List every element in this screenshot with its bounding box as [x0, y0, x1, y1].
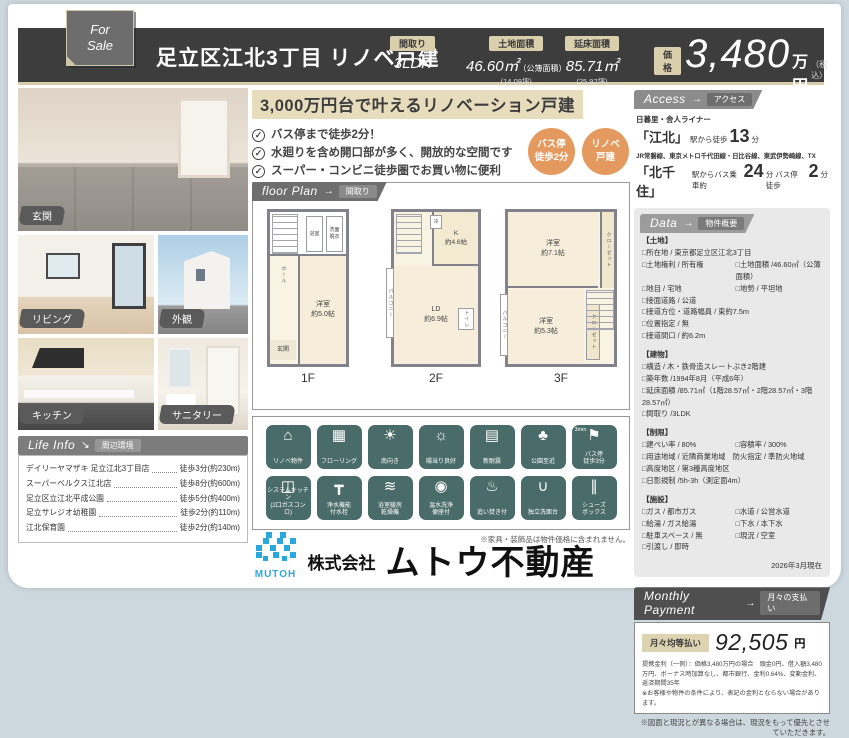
mutoh-logo: MUTOH [254, 532, 298, 580]
room-toilet: トイレ [458, 308, 474, 330]
photo-caption: 外観 [158, 309, 205, 328]
photo-entrance: 玄関 [18, 88, 248, 231]
badge-bus-stop: バス停 徒歩2分 [528, 128, 575, 175]
feature-reheating-bath-icon: ♨追い焚き付 [470, 476, 515, 520]
list-item: デイリーヤマザキ 足立江北3丁目店徒歩3分(約230m) [26, 462, 240, 477]
feature-bus-stop-icon: 3min⚑バス停 徒歩3分 [572, 425, 617, 469]
spec-madori: 間取り 3LDK [390, 34, 435, 72]
list-item: 足立サレジオ幼稚園徒歩2分(約110m) [26, 506, 240, 521]
photo-kitchen: キッチン [18, 338, 154, 430]
room-balcony: バルコニー [386, 268, 394, 338]
feature-row-1: ⌂リノベ物件 ▦フローリング ☀南向き ☼陽当り良好 ▤新耐震 ♣公園至近 3m… [262, 425, 620, 469]
room-bath: 浴室 [306, 216, 323, 252]
floor-plan-3f: 洋室 約7.1帖 クローゼット 洋室 約5.3帖 クローゼット バルコニー 3F [505, 209, 617, 385]
price-unit: 万円 [792, 48, 808, 96]
check-icon: ✓ [252, 147, 265, 160]
floor-label: 1F [267, 371, 349, 385]
spec-floor-area: 延床面積 85.71㎡ (25.92坪) [565, 34, 619, 87]
feature-bathroom-dryer-icon: ≋浴室暖房 乾燥機 [368, 476, 413, 520]
data-row: □ガス / 都市ガス□水道 / 公営水道 [642, 506, 822, 518]
life-info-list: デイリーヤマザキ 足立江北3丁目店徒歩3分(約230m) スーパーベルクス江北店… [18, 455, 248, 543]
life-info-header: Life Info ↘ 周辺環境 [18, 436, 248, 455]
payment-unit: 円 [794, 635, 805, 651]
price-value: 3,480 [685, 32, 790, 77]
arrow-icon: → [745, 598, 754, 609]
photo-caption: キッチン [18, 405, 85, 424]
header-bar: For Sale 足立区江北3丁目 リノベ戸建 間取り 3LDK 土地面積 46… [18, 28, 824, 85]
stairs [396, 214, 422, 254]
feature-south-facing-icon: ☀南向き [368, 425, 413, 469]
feature-shoe-box-icon: ∥シューズ ボックス [572, 476, 617, 520]
spec-value: 3LDK [390, 55, 435, 72]
monthly-payment-panel: Monthly Payment → 月々の支払い 月々均等払い 92,505 円… [634, 587, 830, 738]
data-row: □築年数 /1994年8月（平成6年） [642, 373, 822, 385]
arrow-icon: → [692, 94, 701, 105]
photo-caption: リビング [18, 309, 85, 328]
data-row: □用途地域 / 近隣商業地域 防火指定 / 準防火地域 [642, 451, 822, 463]
company-prefix: 株式会社 [308, 549, 376, 580]
spec-label: 間取り [390, 36, 435, 51]
list-item: 足立区立江北平成公園徒歩5分(約400m) [26, 492, 240, 507]
feature-icons-panel: ⌂リノベ物件 ▦フローリング ☀南向き ☼陽当り良好 ▤新耐震 ♣公園至近 3m… [252, 416, 630, 530]
stairs [586, 290, 614, 330]
photo-column: 玄関 リビング 外観 キッチン サニ [18, 88, 248, 543]
spec-land-area: 土地面積 46.60㎡（公簿面積） (14.09坪) [466, 34, 567, 87]
data-row: □所在地 / 東京都足立区江北3丁目 [642, 247, 822, 259]
data-row: □建ぺい率 / 80%□容積率 / 300% [642, 439, 822, 451]
feature-vanity-icon: ∪独立洗面台 [521, 476, 566, 520]
arrow-icon: → [324, 186, 333, 197]
data-row: □接道方位・道路幅員 / 東約7.5m [642, 306, 822, 318]
photo-sanitary: サニタリー [158, 338, 248, 430]
data-row: □地目 / 宅地□地勢 / 平坦地 [642, 283, 822, 295]
photo-living: リビング [18, 235, 154, 334]
photo-exterior: 外観 [158, 235, 248, 334]
spec-tsubo: (25.92坪) [565, 76, 619, 87]
feature-washlet-icon: ◉温水洗浄 便座付 [419, 476, 464, 520]
exterior-house [184, 251, 230, 309]
floor-label: 2F [391, 371, 481, 385]
entrance-door [178, 98, 230, 178]
access-header: Access → アクセス [634, 90, 762, 109]
data-group-restrictions: 【制限】 □建ぺい率 / 80%□容積率 / 300% □用途地域 / 近隣商業… [642, 427, 822, 487]
feature-water-purifier-icon: ┳浄水機能 付水栓 [317, 476, 362, 520]
company-name: ムトウ不動産 [386, 546, 596, 580]
data-row: □日影規制 /5h-3h（測定面4m） [642, 475, 822, 487]
data-group-building: 【建物】 □構造 / 木・鉄骨造スレートぶき2階建 □築年数 /1994年8月（… [642, 349, 822, 420]
payment-type-label: 月々均等払い [642, 634, 709, 652]
arrow-icon: → [683, 218, 692, 229]
rail-line: 日暮里・舎人ライナー [636, 114, 828, 125]
list-item: スーパーベルクス江北店徒歩8分(約600m) [26, 477, 240, 492]
life-info-panel: Life Info ↘ 周辺環境 デイリーヤマザキ 足立江北3丁目店徒歩3分(約… [18, 436, 248, 543]
photo-caption: サニタリー [158, 405, 235, 424]
spec-label: 土地面積 [489, 36, 543, 51]
closet: クローゼット [600, 212, 614, 288]
spec-value: 85.71㎡ [565, 55, 619, 76]
floor-plan-1f: 浴室 洗面 脱衣 ホール 洋室 約5.0帖 玄関 1F [267, 209, 349, 385]
feature-sunny-icon: ☼陽当り良好 [419, 425, 464, 469]
floor-plan-2f: バルコニー K 約4.6帖 冷 LD 約6.9帖 トイレ 2F [391, 209, 481, 385]
data-row: □位置指定 / 無 [642, 318, 822, 330]
feature-flooring-icon: ▦フローリング [317, 425, 362, 469]
living-balcony-window [112, 243, 146, 309]
room-bedroom-3f-b: 洋室 約5.3帖 [508, 290, 584, 364]
kitchen-hood [32, 348, 84, 368]
feature-row-2: ◫システムキッチン (2口ガスコンロ) ┳浄水機能 付水栓 ≋浴室暖房 乾燥機 … [262, 476, 620, 520]
data-row: □土地権利 / 所有権□土地面積 /46.60㎡（公簿面積） [642, 259, 822, 283]
feature-park-nearby-icon: ♣公園至近 [521, 425, 566, 469]
room-bedroom-3f-a: 洋室 約7.1帖 [508, 212, 598, 288]
data-row: □延床面積 /85.71㎡（1階28.57㎡・2階28.57㎡・3階28.57㎡… [642, 385, 822, 409]
station-access: 「江北」駅から徒歩13分 [636, 126, 828, 147]
kitchen-counter [24, 390, 134, 398]
data-row: □高度地区 / 第3種高度地区 [642, 463, 822, 475]
exterior-window [196, 269, 205, 281]
arrow-icon: ↘ [81, 440, 88, 451]
catchphrase: 3,000万円台で叶えるリノベーション戸建 [252, 90, 583, 119]
selling-point: ✓スーパー・コンビニ徒歩圏でお買い物に便利 [252, 163, 630, 181]
data-group-land: 【土地】 □所在地 / 東京都足立区江北3丁目 □土地権利 / 所有権□土地面積… [642, 235, 822, 342]
rail-line: JR常磐線、東京メトロ千代田線・日比谷線、東武伊勢崎線、TX [636, 151, 828, 160]
data-row: □間取り /3LDK [642, 408, 822, 420]
room-entrance: 玄関 [270, 340, 296, 360]
payment-amount: 92,505 [715, 629, 788, 656]
price-tax-note: （税込） [811, 59, 827, 81]
main-column: 3,000万円台で叶えるリノベーション戸建 ✓バス停まで徒歩2分！ ✓水廻りを含… [252, 90, 630, 560]
photo-caption: 玄関 [18, 206, 65, 225]
spec-tsubo: (14.09坪) [466, 76, 567, 87]
data-row: □構造 / 木・鉄骨造スレートぶき2階建 [642, 361, 822, 373]
data-row: □給湯 / ガス給湯□下水 / 本下水 [642, 518, 822, 530]
data-header: Data → 物件概要 [640, 214, 754, 233]
sanitary-mirror [168, 348, 192, 388]
data-row: □接面道路 / 公道 [642, 295, 822, 307]
access-body: 日暮里・舎人ライナー 「江北」駅から徒歩13分 JR常磐線、東京メトロ千代田線・… [634, 109, 830, 200]
mutoh-logo-icon [254, 532, 298, 564]
fridge-space: 冷 [430, 215, 442, 229]
for-sale-badge: For Sale [66, 10, 134, 66]
room-washroom: 洗面 脱衣 [326, 216, 343, 252]
feature-system-kitchen-icon: ◫システムキッチン (2口ガスコンロ) [266, 476, 311, 520]
check-icon: ✓ [252, 129, 265, 142]
loan-terms-note: 提携金利（一例）：価格3,480万円の場合 頭金0円、借入額3,480万円、ボー… [642, 660, 822, 708]
room-hall: ホール [270, 260, 296, 290]
flyer-page: For Sale 足立区江北3丁目 リノベ戸建 間取り 3LDK 土地面積 46… [8, 4, 841, 588]
price-block: 価格 3,480 万円 （税込） [654, 32, 827, 96]
station-access: 「北千住」駅からバス乗車約24分 バス停 徒歩2分 [636, 161, 828, 200]
floor-label: 3F [505, 371, 617, 385]
data-row: □接道間口 / 約6.2m [642, 330, 822, 342]
property-data-panel: Data → 物件概要 【土地】 □所在地 / 東京都足立区江北3丁目 □土地権… [634, 208, 830, 577]
feature-earthquake-standard-icon: ▤新耐震 [470, 425, 515, 469]
monthly-payment-header: Monthly Payment → 月々の支払い [634, 587, 830, 620]
badge-renovated: リノベ 戸建 [582, 128, 629, 175]
room-bedroom-1f: 洋室 約5.0帖 [298, 256, 346, 364]
access-panel: Access → アクセス 日暮里・舎人ライナー 「江北」駅から徒歩13分 JR… [634, 90, 830, 200]
floor-plan-panel: floor Plan → 間取り 浴室 洗面 脱衣 ホール 洋室 約5.0帖 玄… [252, 182, 630, 410]
spec-label: 延床面積 [565, 36, 619, 51]
spec-value: 46.60㎡（公簿面積） [466, 55, 567, 76]
price-label: 価格 [654, 47, 681, 75]
right-column: Access → アクセス 日暮里・舎人ライナー 「江北」駅から徒歩13分 JR… [634, 90, 830, 738]
company-footer: MUTOH 株式会社 ムトウ不動産 [8, 532, 841, 580]
check-icon: ✓ [252, 165, 265, 178]
monthly-payment-body: 月々均等払い 92,505 円 提携金利（一例）：価格3,480万円の場合 頭金… [634, 622, 830, 714]
stairs [272, 214, 298, 254]
floor-plan-header: floor Plan → 間取り [252, 182, 387, 201]
room-balcony: バルコニー [500, 294, 508, 356]
living-window [46, 253, 80, 279]
drawing-disclaimer: ※図面と現況とが異なる場合は、現況をもって優先とさせていただきます。 [634, 718, 830, 738]
feature-renovated-icon: ⌂リノベ物件 [266, 425, 311, 469]
